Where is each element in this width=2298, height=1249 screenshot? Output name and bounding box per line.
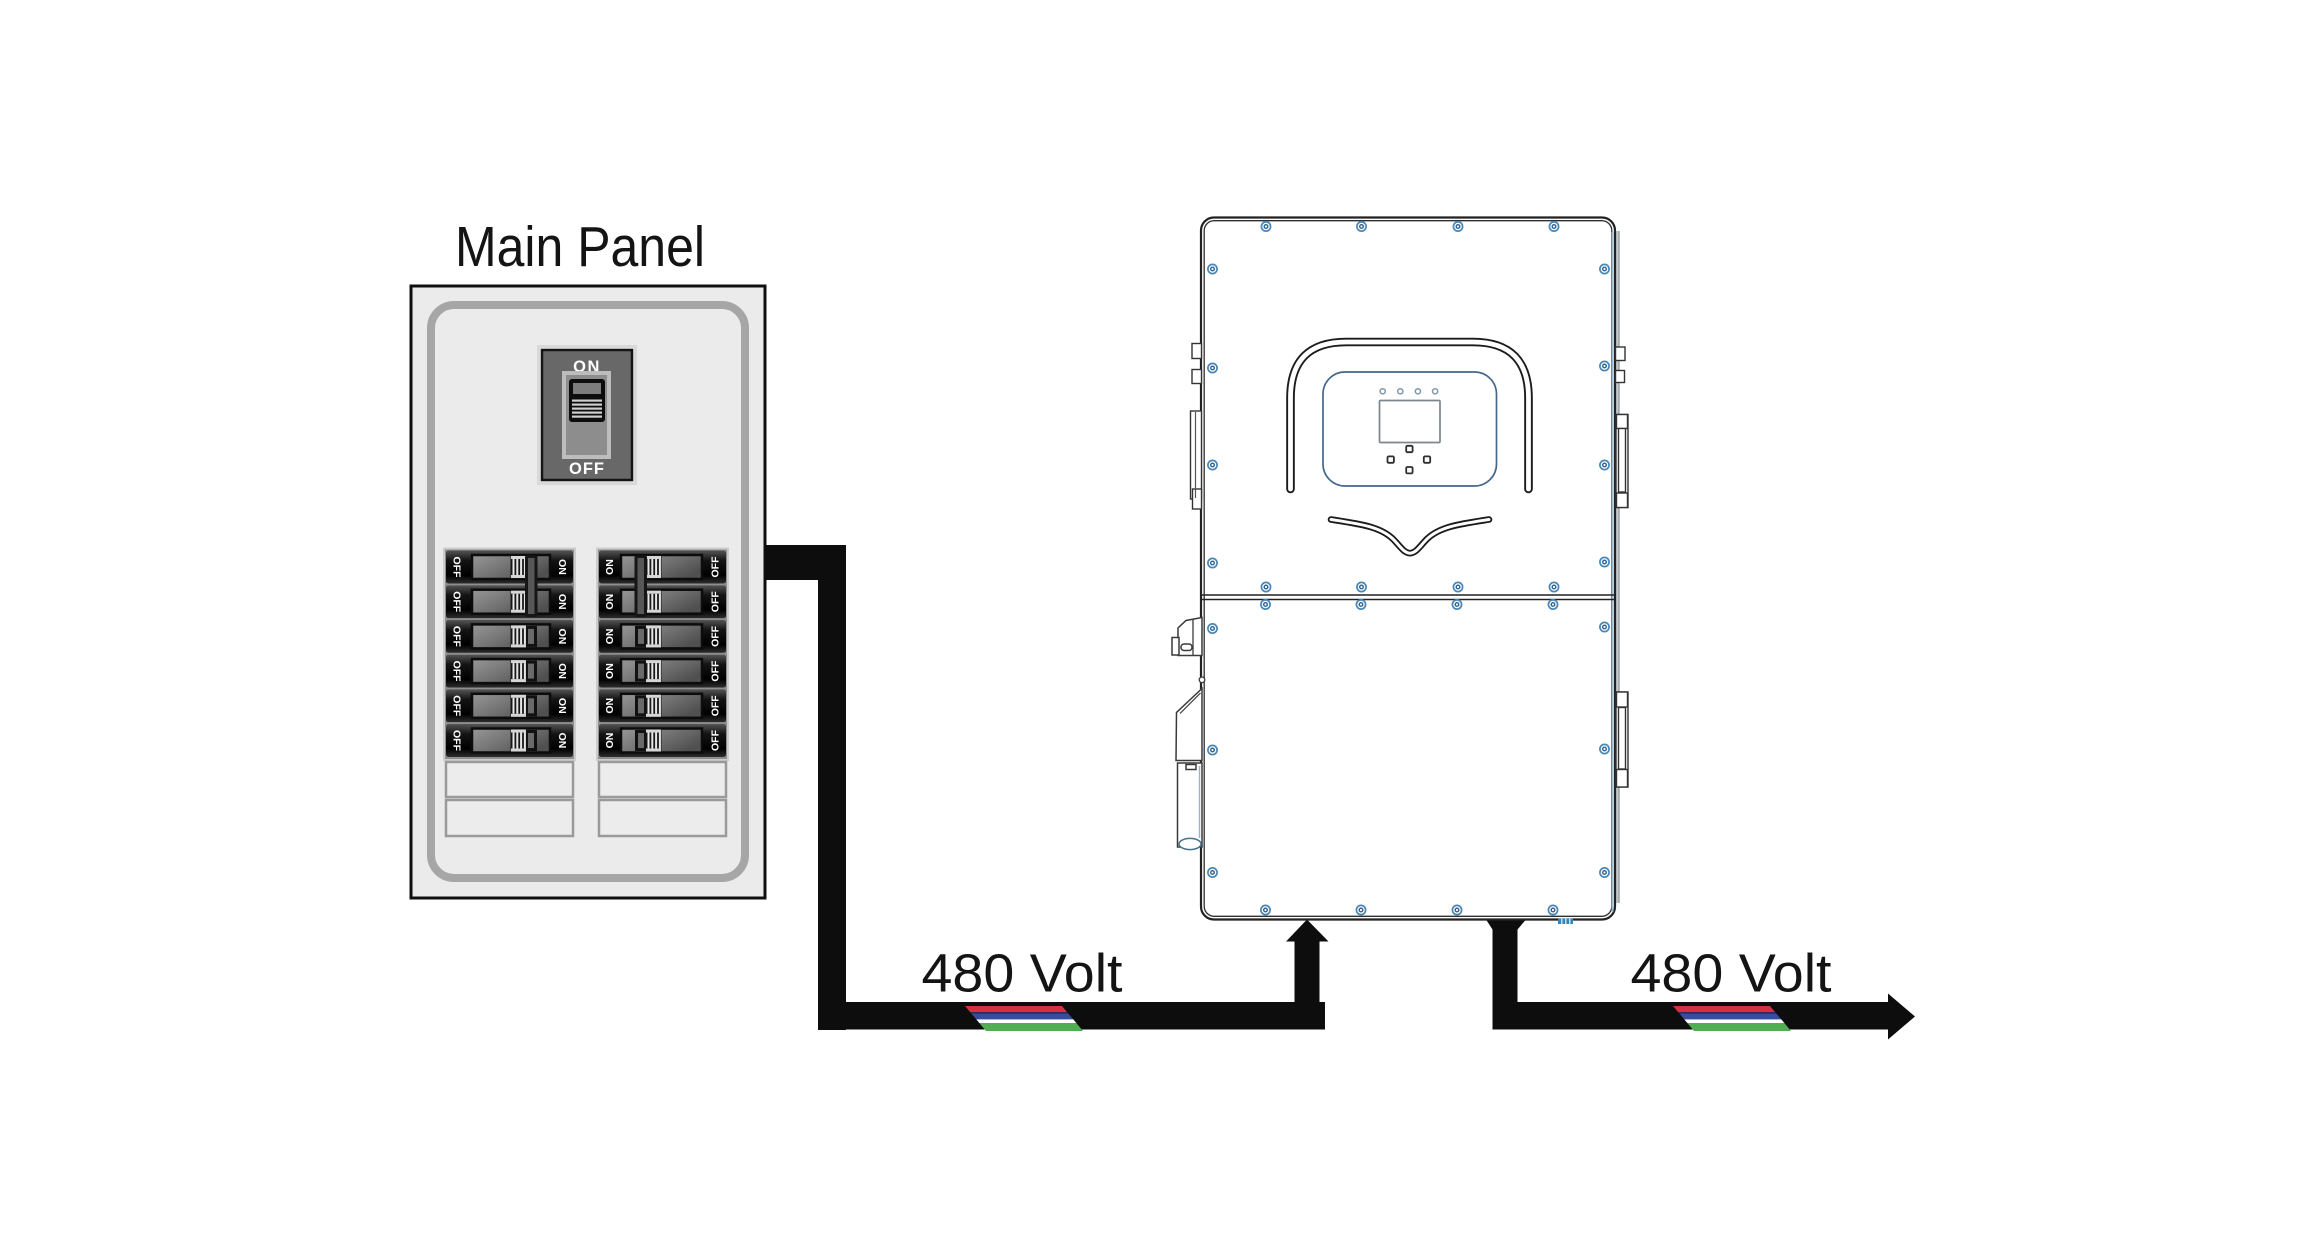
svg-text:Main Panel: Main Panel [455,215,705,279]
svg-text:OFF: OFF [569,460,605,478]
svg-text:480 Volt: 480 Volt [1631,944,1832,1004]
svg-text:480 Volt: 480 Volt [922,944,1123,1004]
